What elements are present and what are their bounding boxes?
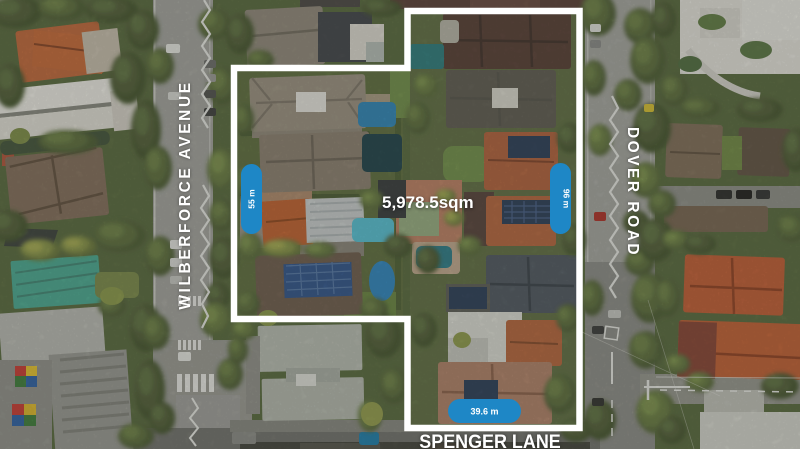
svg-text:55 m: 55 m: [247, 189, 257, 209]
svg-text:5,978.5sqm: 5,978.5sqm: [382, 193, 474, 212]
svg-text:SPENGER LANE: SPENGER LANE: [419, 431, 560, 449]
svg-text:39.6 m: 39.6 m: [470, 407, 498, 417]
svg-text:96 m: 96 m: [562, 189, 572, 209]
svg-text:WILBERFORCE AVENUE: WILBERFORCE AVENUE: [177, 80, 194, 309]
svg-text:DOVER ROAD: DOVER ROAD: [624, 127, 641, 257]
